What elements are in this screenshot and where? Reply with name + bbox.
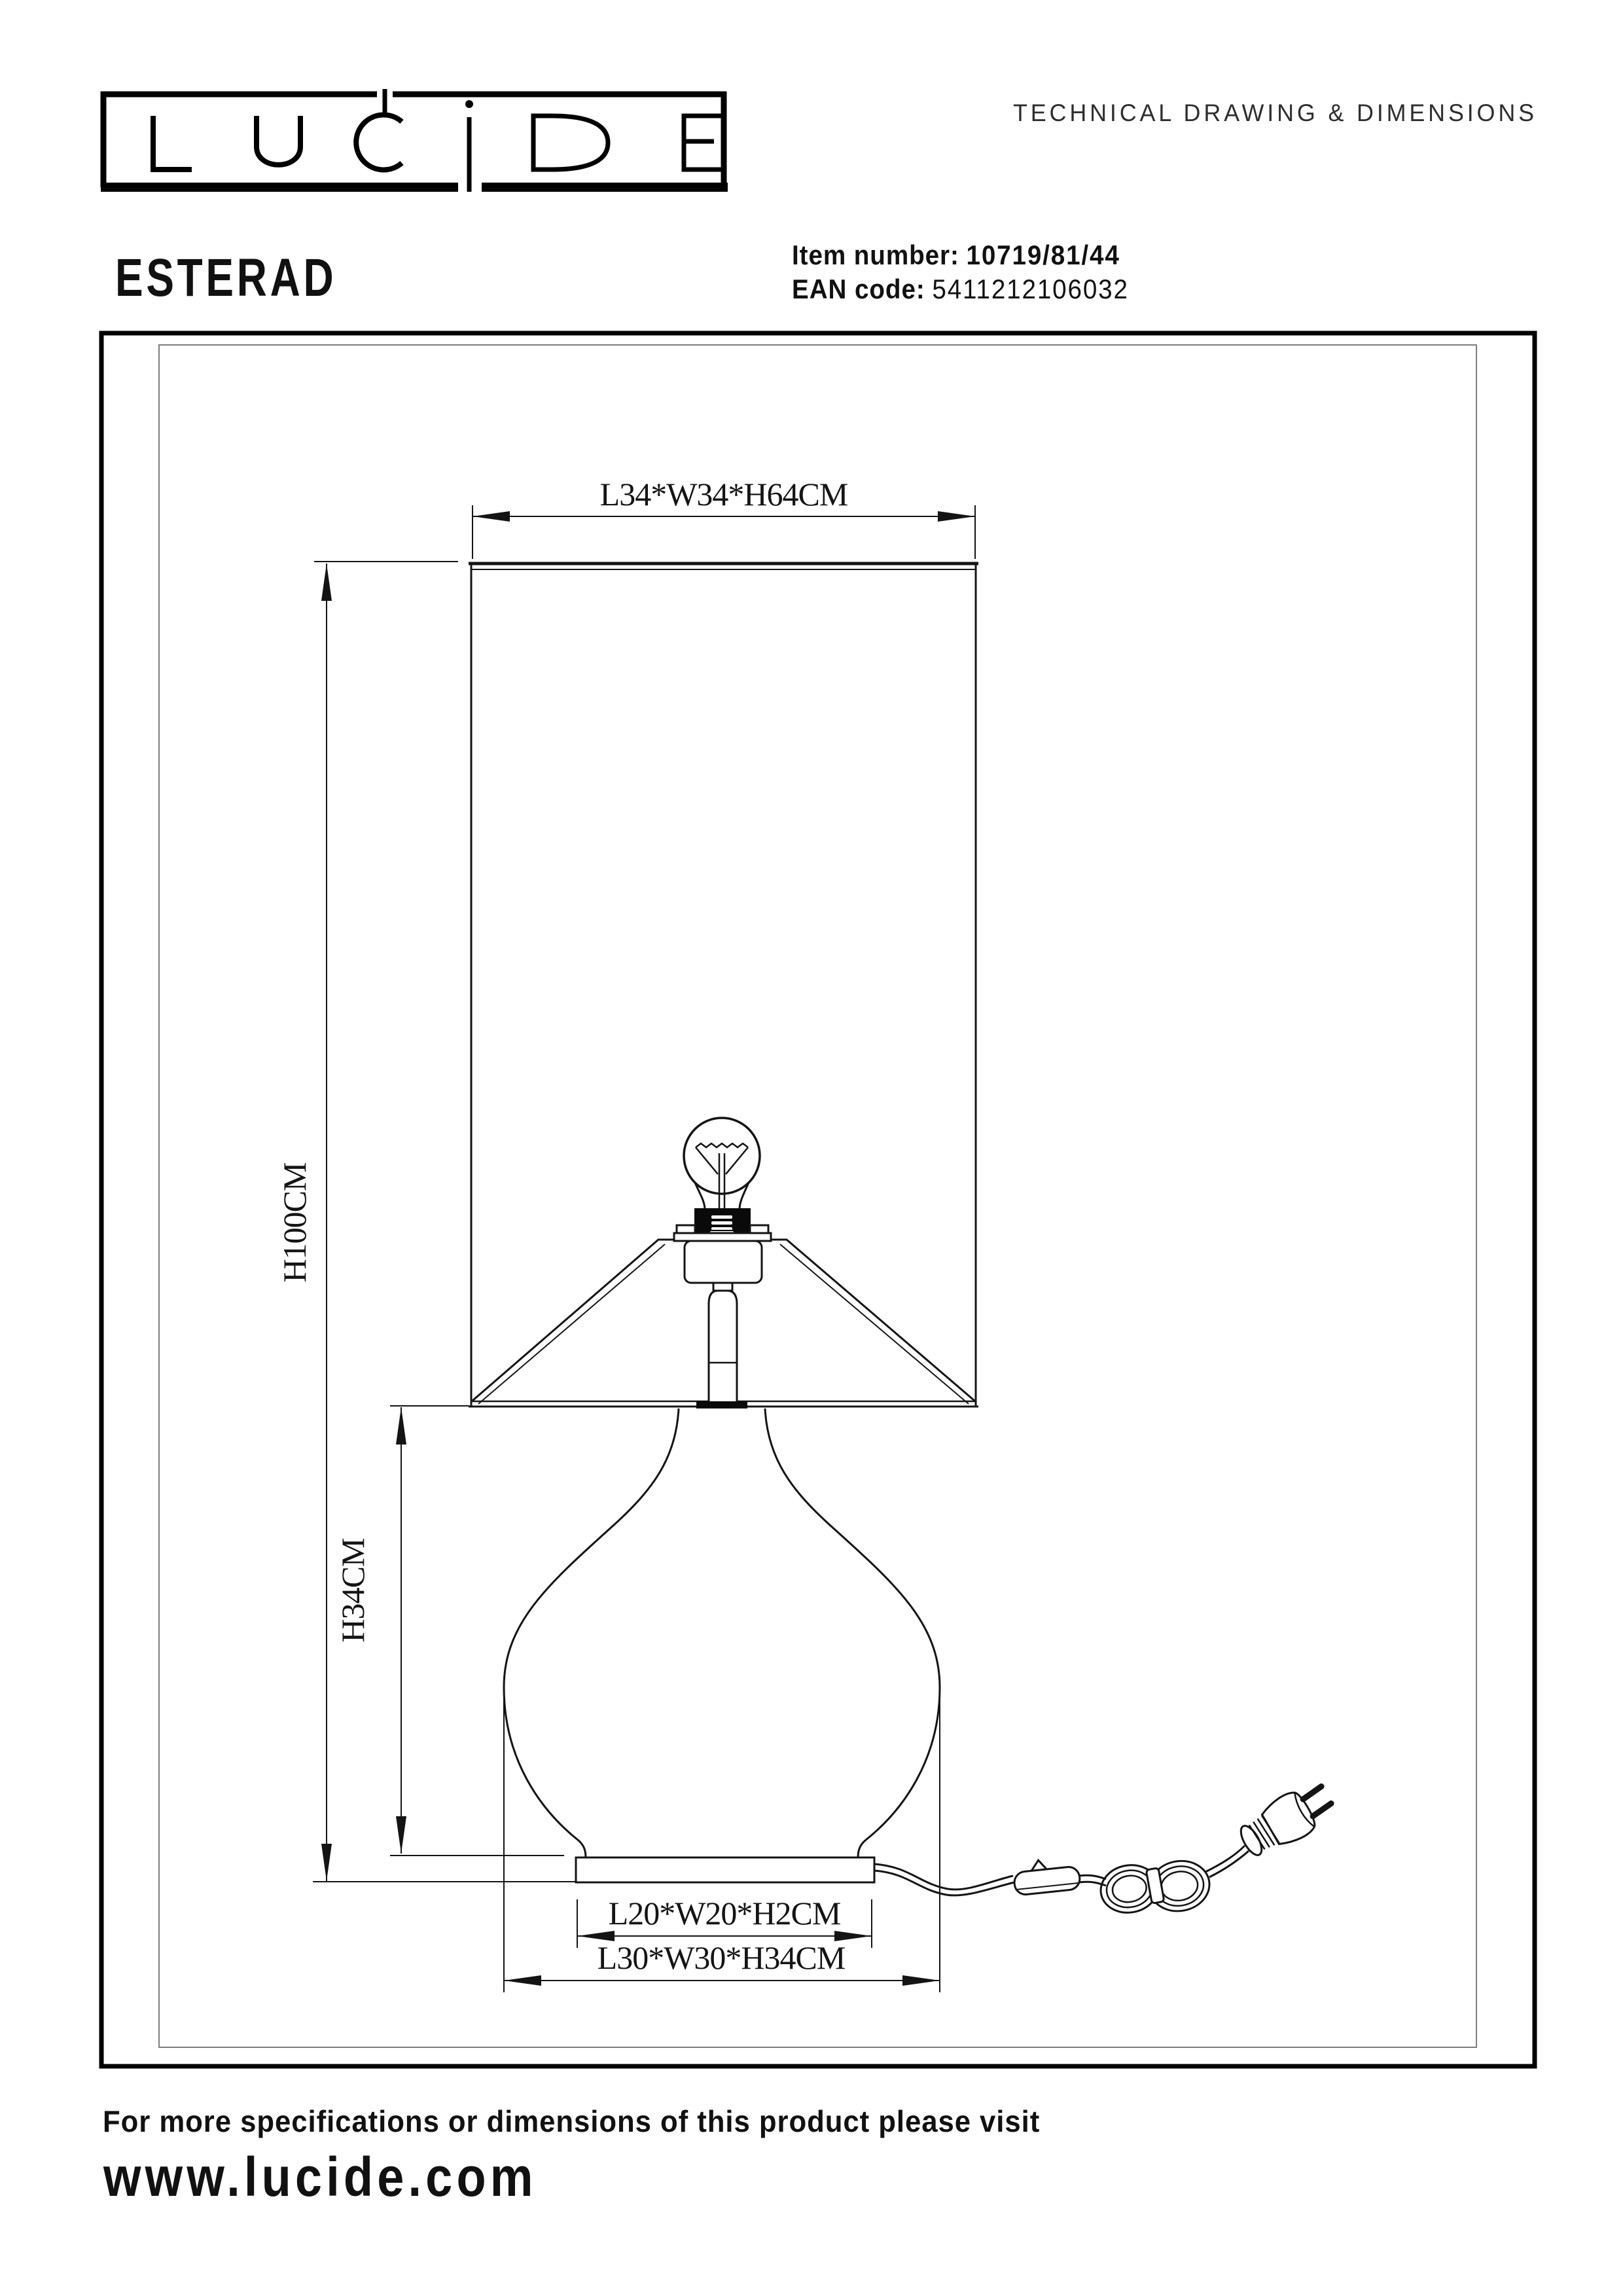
- glass-body: [504, 1408, 940, 1857]
- drawing-outer-frame: [101, 333, 1535, 2066]
- power-cord: [874, 1777, 1339, 1924]
- item-number-label: Item number:: [792, 240, 959, 270]
- item-number-value: 10719/81/44: [967, 240, 1120, 270]
- item-number-row: Item number: 10719/81/44: [792, 240, 1129, 271]
- lamp-socket: [674, 1208, 771, 1408]
- lucide-logo: [101, 89, 728, 192]
- dim-glass-body-label: L30*W30*H34CM: [597, 1939, 846, 1976]
- ean-label: EAN code:: [792, 274, 925, 304]
- product-codes: Item number: 10719/81/44 EAN code: 54112…: [792, 240, 1158, 308]
- dim-shade: [473, 505, 975, 559]
- technical-drawing-canvas: L34*W34*H64CM H100CM H34CM L20*W20*: [0, 0, 1623, 2296]
- website-link: www.lucide.com: [103, 2145, 537, 2209]
- cord-coil: [1097, 1852, 1213, 1924]
- socket-cup: [685, 1241, 762, 1283]
- product-name: ESTERAD: [115, 247, 336, 309]
- power-plug: [1234, 1777, 1339, 1864]
- lamp-stem: [709, 1291, 737, 1405]
- ean-value: 5411212106032: [932, 274, 1128, 304]
- ean-row: EAN code: 5411212106032: [792, 274, 1129, 305]
- spec-sheet-page: LUCIDE: [0, 0, 1623, 2296]
- dim-base-plate-label: L20*W20*H2CM: [609, 1895, 841, 1931]
- light-bulb: [684, 1118, 760, 1210]
- lucide-logo-i-dot: [465, 100, 473, 108]
- drawing-inner-frame: [159, 345, 1476, 2047]
- shade-mount-bar: [696, 1401, 747, 1408]
- dim-overall-height-label: H100CM: [276, 1163, 313, 1283]
- doc-title: TECHNICAL DRAWING & DIMENSIONS: [1013, 99, 1559, 127]
- dim-body-height-label: H34CM: [334, 1539, 371, 1643]
- lucide-logo-letters: [153, 115, 722, 192]
- power-switch: [1012, 1856, 1081, 1895]
- base-plate: [576, 1857, 874, 1882]
- footer-note: For more specifications or dimensions of…: [103, 2104, 1040, 2139]
- dim-overall-height: [313, 562, 576, 1882]
- dim-shade-label: L34*W34*H64CM: [600, 476, 848, 512]
- dim-body-height: [390, 1406, 564, 1856]
